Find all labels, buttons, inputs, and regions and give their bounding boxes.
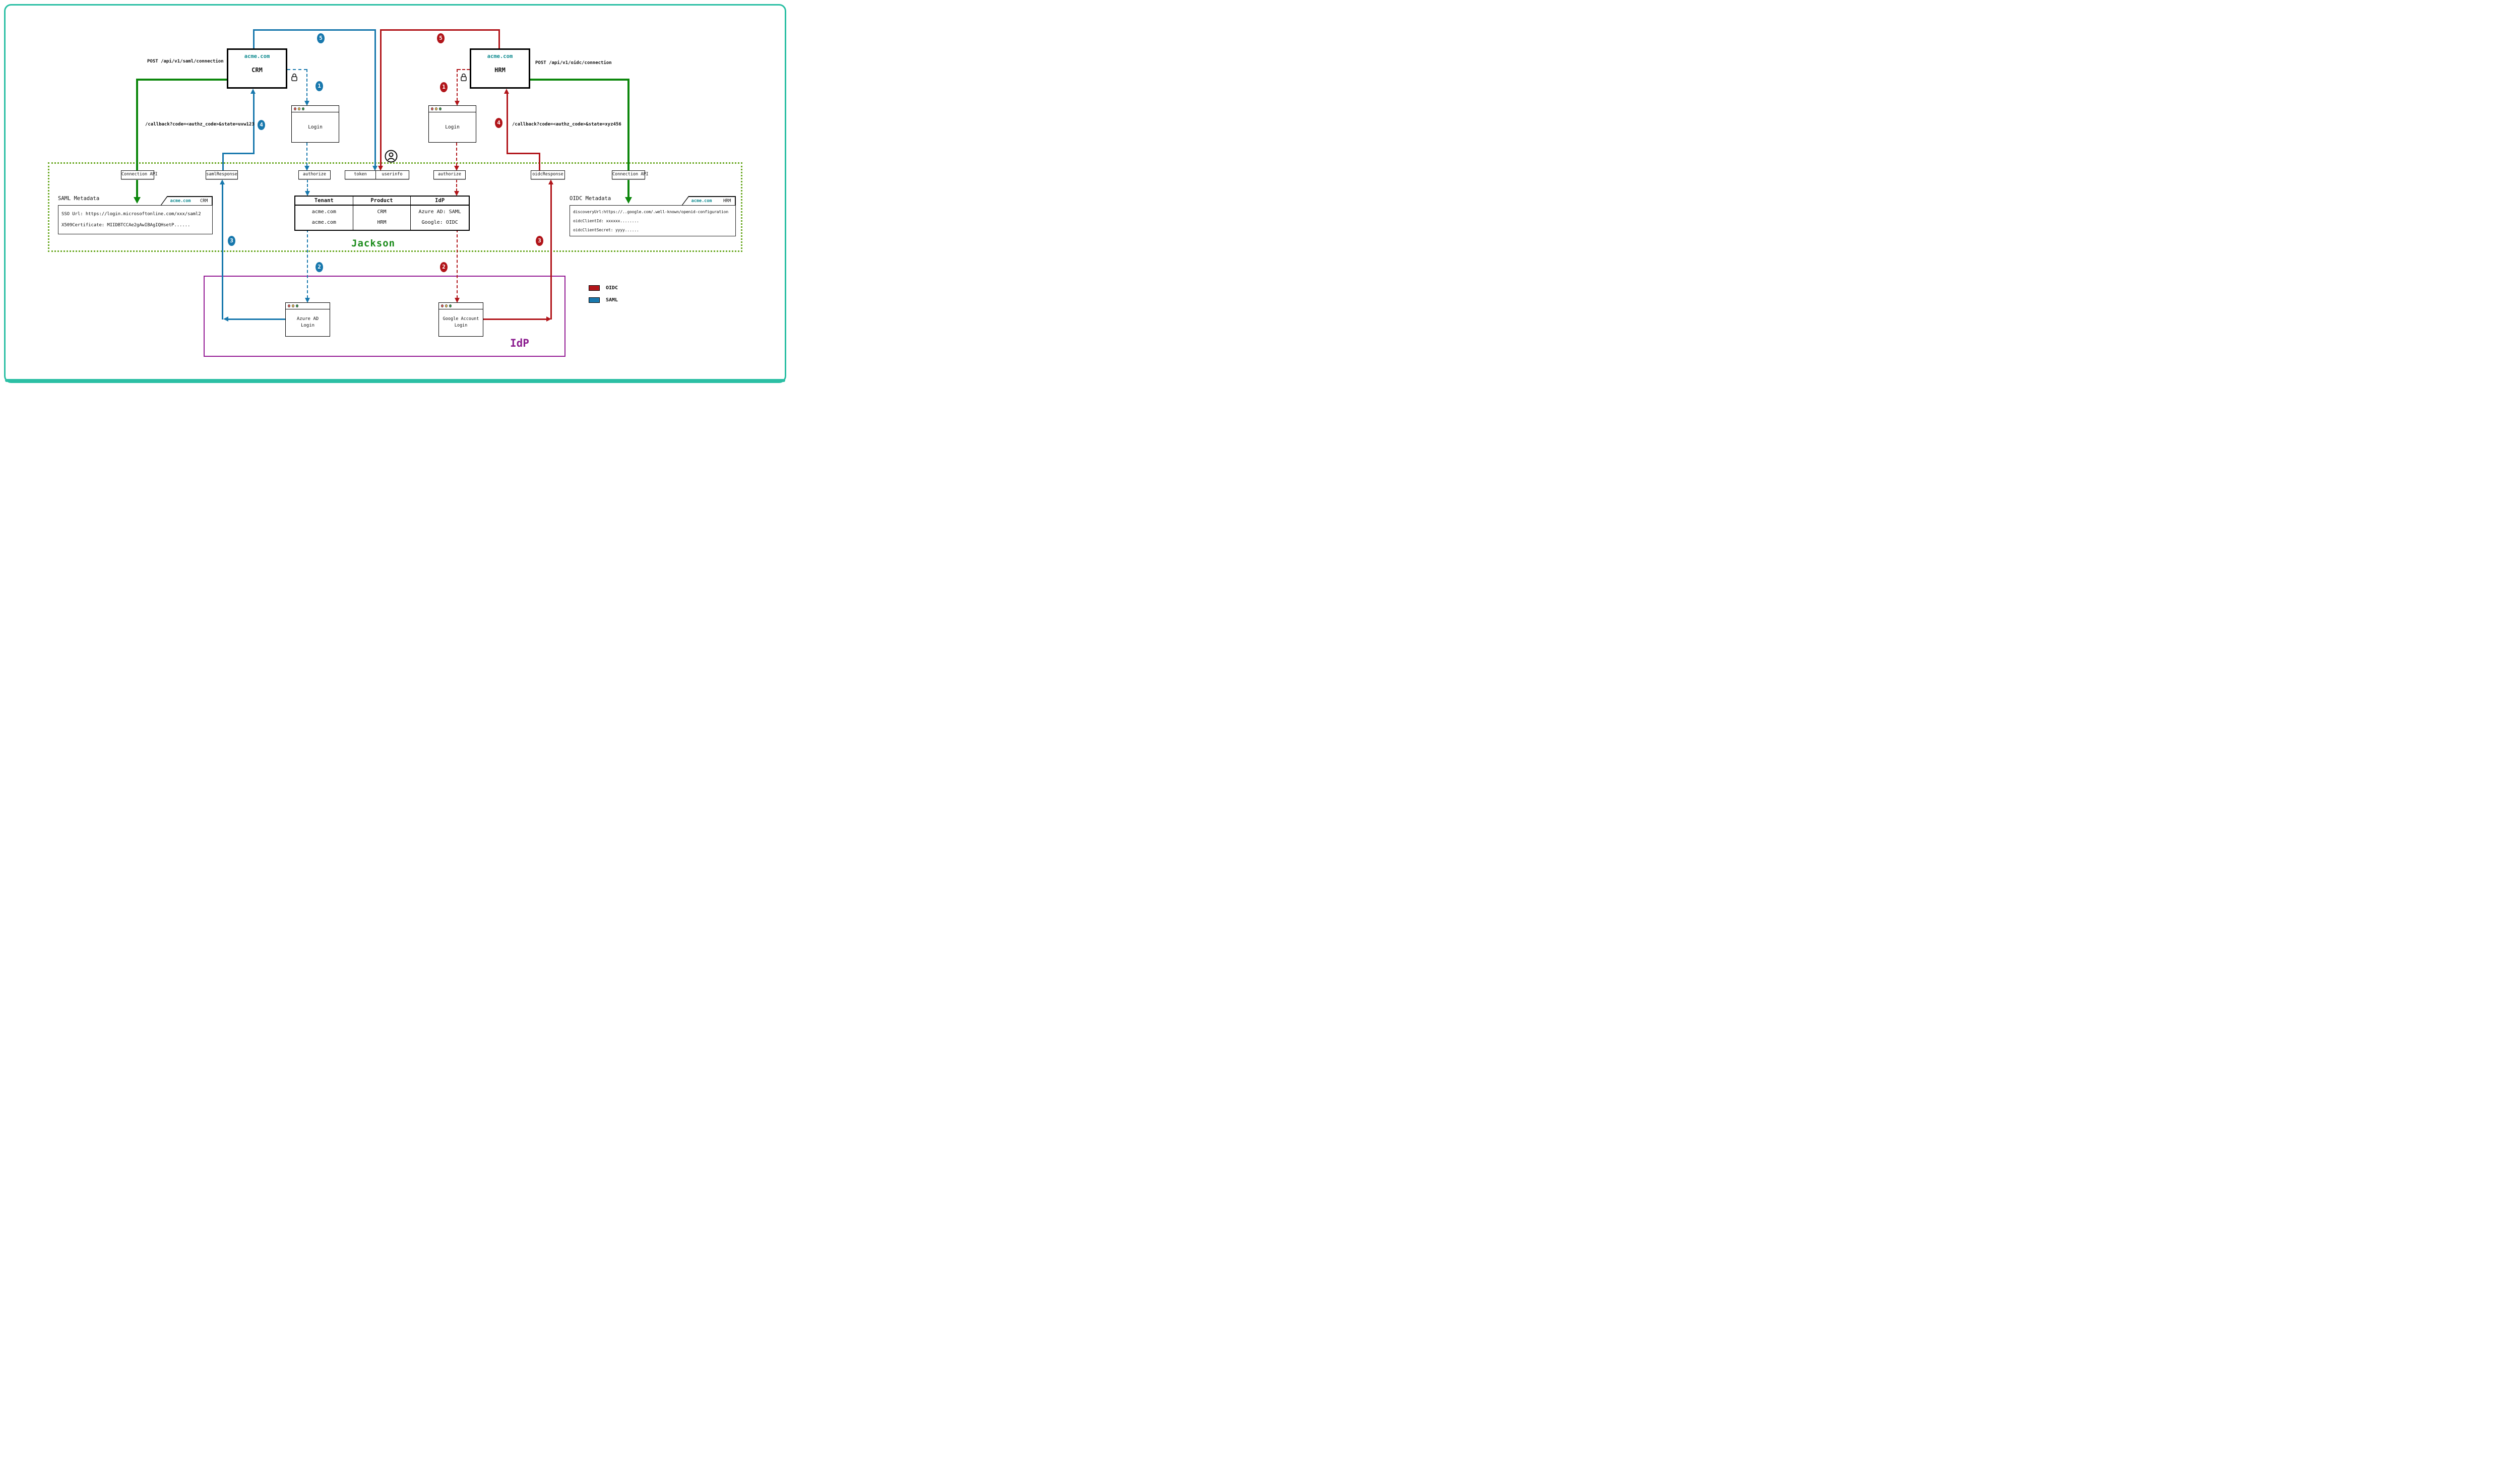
saml-step-badge-2: 2 bbox=[316, 262, 323, 272]
oidc-step3-line-up bbox=[550, 182, 552, 320]
table-header-idp: IdP bbox=[411, 197, 469, 205]
window-minimize-dot-icon bbox=[298, 107, 300, 110]
legend-label-oidc: OIDC bbox=[606, 285, 618, 291]
saml-x509-certificate: X509Certificate: MIIDBTCCAe2gAwIBAgIQHse… bbox=[61, 220, 209, 231]
oidc-connection-api-line-v bbox=[627, 79, 629, 198]
user-icon bbox=[384, 149, 398, 163]
window-zoom-dot-icon bbox=[449, 304, 452, 307]
oidc-step4-line-jog bbox=[507, 153, 540, 154]
window-zoom-dot-icon bbox=[439, 107, 442, 110]
hrm-domain: acme.com bbox=[471, 53, 529, 59]
oidc-step5-line-top bbox=[381, 29, 500, 31]
oidc-step-badge-2: 2 bbox=[440, 262, 448, 272]
saml-step4-line-from-samlresponse bbox=[222, 154, 224, 170]
endpoint-samlresponse: samlResponse bbox=[206, 170, 238, 179]
oidc-step5-line-from-hrm bbox=[498, 29, 500, 48]
saml-dash-authorize-to-table bbox=[307, 179, 308, 192]
sso-flow-diagram: acme.com CRM acme.com HRM Login bbox=[0, 0, 790, 387]
endpoint-oidcresponse: oidcResponse bbox=[531, 170, 565, 179]
google-login-window: Google Account Login bbox=[438, 302, 483, 337]
saml-metadata-tab: acme.com CRM bbox=[160, 196, 213, 206]
saml-step3-line-up bbox=[222, 182, 223, 320]
saml-connection-api-line-v bbox=[136, 79, 138, 198]
table-row: acme.com HRM Google: OIDC bbox=[295, 218, 469, 230]
saml-step2-dash-to-idp bbox=[307, 229, 308, 298]
endpoint-authorize-oidc: authorize bbox=[433, 170, 466, 179]
oidc-step4-line-up bbox=[507, 93, 508, 154]
window-zoom-dot-icon bbox=[296, 304, 298, 307]
window-close-dot-icon bbox=[431, 107, 433, 110]
saml-step-badge-5: 5 bbox=[317, 33, 325, 43]
legend-swatch-saml bbox=[589, 297, 600, 303]
saml-arrow-into-crm bbox=[250, 89, 256, 94]
saml-step5-line-to-token bbox=[374, 29, 376, 166]
hrm-name: HRM bbox=[471, 67, 529, 74]
saml-dash-login-to-authorize bbox=[306, 143, 307, 166]
idp-title: IdP bbox=[510, 337, 529, 349]
oidc-arrow-right-junction bbox=[546, 316, 551, 322]
green-arrow-into-saml-metadata bbox=[134, 197, 141, 204]
oidc-step4-line-from-oidcresponse bbox=[539, 154, 540, 170]
table-header-product: Product bbox=[353, 197, 411, 205]
saml-step1-dash-to-login bbox=[306, 69, 307, 101]
window-close-dot-icon bbox=[288, 304, 290, 307]
oidc-step2-dash-to-idp bbox=[457, 229, 458, 298]
legend-label-saml: SAML bbox=[606, 297, 618, 303]
saml-metadata-tab-domain: acme.com bbox=[170, 199, 191, 204]
saml-metadata-title: SAML Metadata bbox=[58, 196, 99, 202]
endpoint-connection-api-saml: Connection API bbox=[121, 170, 154, 179]
oidc-dash-login-to-authorize bbox=[456, 143, 457, 166]
table-cell-product: CRM bbox=[353, 206, 411, 218]
table-header-tenant: Tenant bbox=[295, 197, 353, 205]
endpoint-userinfo: userinfo bbox=[375, 170, 409, 179]
azure-login-label-line2: Login bbox=[301, 323, 314, 329]
saml-metadata-box: SSO Url: https://login.microsoftonline.c… bbox=[58, 205, 213, 234]
saml-connection-api-line-h bbox=[136, 79, 227, 81]
saml-step-badge-4: 4 bbox=[258, 120, 265, 130]
oidc-metadata-tab-domain: acme.com bbox=[691, 199, 712, 204]
oidc-connection-api-line-h bbox=[530, 79, 629, 81]
saml-step4-line-jog bbox=[222, 153, 255, 154]
crm-app-box: acme.com CRM bbox=[227, 48, 287, 89]
lock-icon bbox=[291, 73, 298, 82]
hrm-app-box: acme.com HRM bbox=[470, 48, 530, 89]
saml-step1-dash-from-crm bbox=[287, 69, 307, 70]
saml-step5-line-top bbox=[253, 29, 376, 31]
oidc-step1-dash-from-hrm bbox=[458, 69, 470, 70]
green-arrow-into-oidc-metadata bbox=[625, 197, 632, 204]
table-cell-idp: Google: OIDC bbox=[411, 218, 469, 230]
oidc-metadata-box: discoveryUrl:https://..google.com/.well-… bbox=[570, 205, 736, 236]
oidc-step-badge-5: 5 bbox=[437, 33, 445, 43]
window-close-dot-icon bbox=[294, 107, 296, 110]
login-window-label: Login bbox=[308, 124, 323, 131]
oidc-arrow-into-oidcresponse bbox=[548, 179, 553, 184]
endpoint-authorize-saml: authorize bbox=[298, 170, 331, 179]
endpoint-connection-api-oidc: Connection API bbox=[612, 170, 645, 179]
oidc-metadata-tab: acme.com HRM bbox=[681, 196, 736, 206]
oidc-client-secret: oidcClientSecret: yyyy...... bbox=[573, 226, 732, 235]
window-minimize-dot-icon bbox=[292, 304, 294, 307]
saml-callback-label: /callback?code=<authz_code>&state=uvw123 bbox=[145, 122, 255, 127]
saml-sso-url: SSO Url: https://login.microsoftonline.c… bbox=[61, 209, 209, 220]
oidc-step-badge-4: 4 bbox=[495, 118, 502, 128]
oidc-dash-authorize-to-table bbox=[456, 179, 457, 192]
saml-step-badge-3: 3 bbox=[228, 236, 235, 246]
oidc-callback-label: /callback?code=<authz_code>&state=xyz456 bbox=[512, 122, 621, 127]
post-oidc-connection-label: POST /api/v1/oidc/connection bbox=[535, 60, 612, 66]
saml-step3-line-from-azure bbox=[228, 318, 285, 320]
oidc-client-id: oidcClientId: xxxxxx........ bbox=[573, 217, 732, 226]
login-window-label: Login bbox=[445, 124, 460, 131]
google-login-label-line2: Login bbox=[455, 323, 468, 329]
table-cell-idp: Azure AD: SAML bbox=[411, 206, 469, 218]
post-saml-connection-label: POST /api/v1/saml/connection bbox=[147, 59, 224, 64]
window-minimize-dot-icon bbox=[445, 304, 448, 307]
window-close-dot-icon bbox=[441, 304, 444, 307]
table-cell-tenant: acme.com bbox=[295, 206, 353, 218]
table-cell-product: HRM bbox=[353, 218, 411, 230]
oidc-step-badge-1: 1 bbox=[440, 82, 448, 92]
page-border-bottom-bar bbox=[5, 379, 785, 382]
saml-arrow-into-samlresponse bbox=[220, 179, 225, 184]
endpoint-token: token bbox=[345, 170, 376, 179]
table-row: acme.com CRM Azure AD: SAML bbox=[295, 206, 469, 218]
table-header-row: Tenant Product IdP bbox=[295, 197, 469, 206]
oidc-metadata-tab-product: HRM bbox=[723, 199, 731, 204]
login-window-saml: Login bbox=[291, 105, 339, 143]
saml-step5-line-from-crm bbox=[253, 29, 255, 48]
saml-arrow-left-junction bbox=[223, 316, 228, 322]
login-window-oidc: Login bbox=[428, 105, 476, 143]
azure-login-label-line1: Azure AD bbox=[297, 316, 319, 323]
oidc-step3-line-from-google bbox=[483, 318, 547, 320]
window-minimize-dot-icon bbox=[435, 107, 437, 110]
window-zoom-dot-icon bbox=[302, 107, 304, 110]
crm-domain: acme.com bbox=[228, 53, 286, 59]
jackson-title: Jackson bbox=[351, 238, 395, 249]
oidc-arrow-into-hrm bbox=[504, 89, 509, 94]
table-cell-tenant: acme.com bbox=[295, 218, 353, 230]
azure-ad-login-window: Azure AD Login bbox=[285, 302, 330, 337]
oidc-step-badge-3: 3 bbox=[536, 236, 543, 246]
saml-metadata-tab-product: CRM bbox=[200, 199, 208, 204]
google-login-label-line1: Google Account bbox=[443, 316, 479, 323]
crm-name: CRM bbox=[228, 67, 286, 74]
oidc-step1-dash-to-login bbox=[457, 69, 458, 101]
saml-step-badge-1: 1 bbox=[316, 81, 323, 91]
legend-swatch-oidc bbox=[589, 285, 600, 291]
oidc-metadata-title: OIDC Metadata bbox=[570, 196, 611, 202]
oidc-step5-line-to-userinfo bbox=[380, 29, 382, 166]
lock-icon bbox=[460, 73, 467, 82]
tenant-table: Tenant Product IdP acme.com CRM Azure AD… bbox=[294, 196, 470, 231]
oidc-discovery-url: discoveryUrl:https://..google.com/.well-… bbox=[573, 208, 732, 217]
